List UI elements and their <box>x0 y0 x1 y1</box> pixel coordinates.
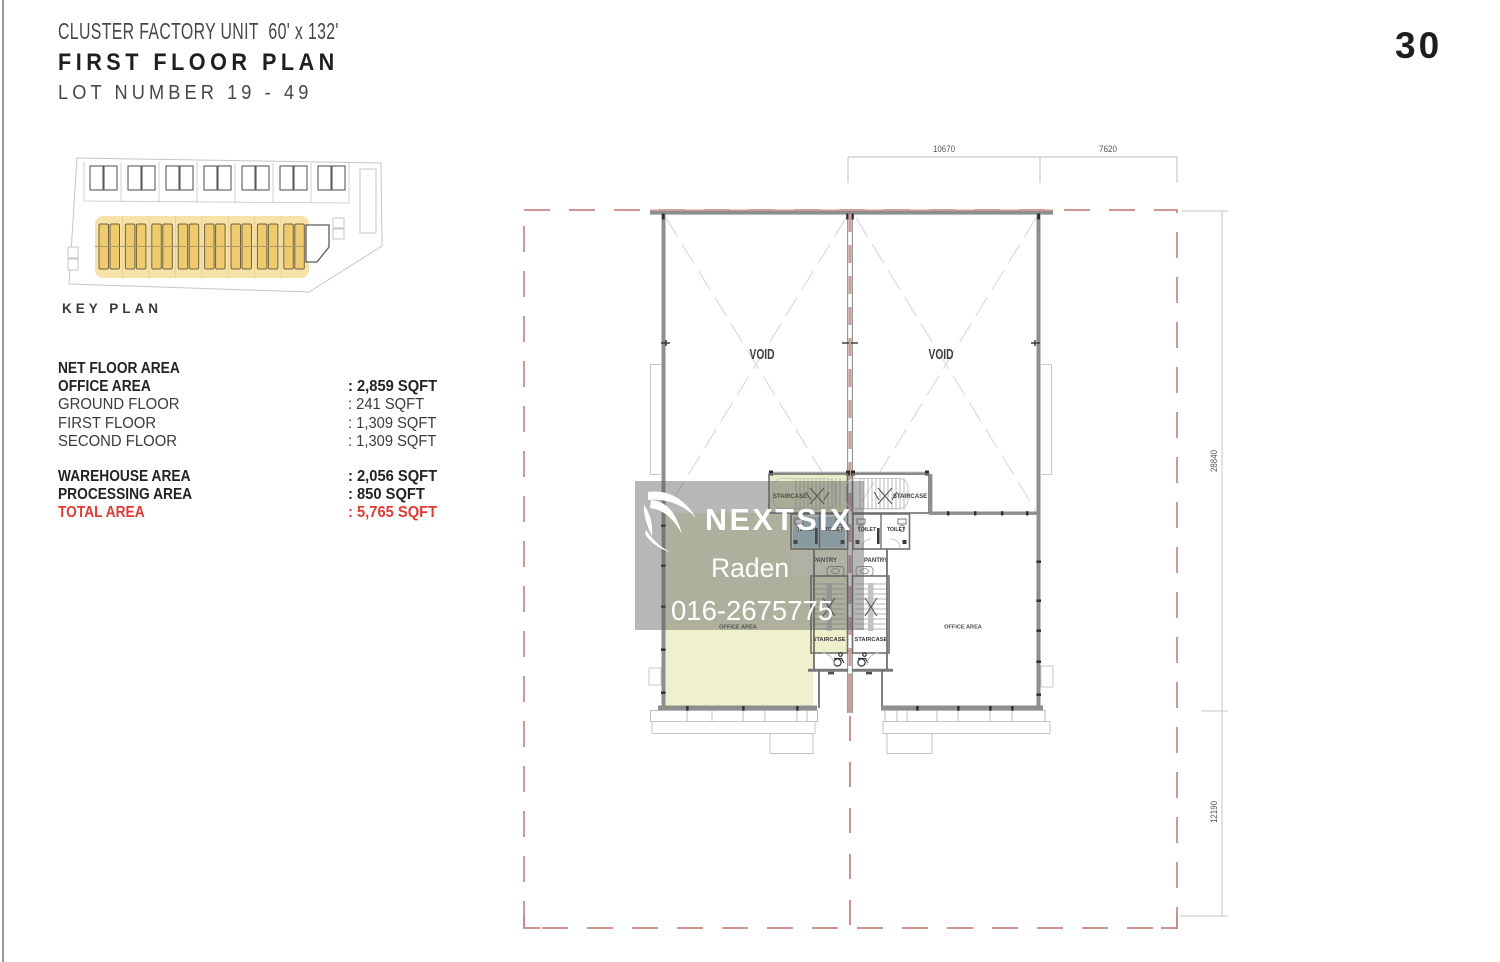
svg-text:STAIRCASE: STAIRCASE <box>812 637 845 643</box>
svg-text:STAIRCASE: STAIRCASE <box>854 637 887 643</box>
svg-text:OFFICE AREA: OFFICE AREA <box>944 625 982 631</box>
svg-text:10670: 10670 <box>933 144 955 155</box>
svg-text:12190: 12190 <box>1209 801 1219 823</box>
svg-text:VOID: VOID <box>750 347 775 363</box>
svg-text:7620: 7620 <box>1099 144 1117 155</box>
svg-text:TOILET: TOILET <box>887 527 906 533</box>
svg-text:28840: 28840 <box>1209 450 1219 472</box>
svg-text:STAIRCASE: STAIRCASE <box>893 494 927 500</box>
svg-text:PANTRY: PANTRY <box>864 558 888 564</box>
svg-text:VOID: VOID <box>929 347 954 363</box>
